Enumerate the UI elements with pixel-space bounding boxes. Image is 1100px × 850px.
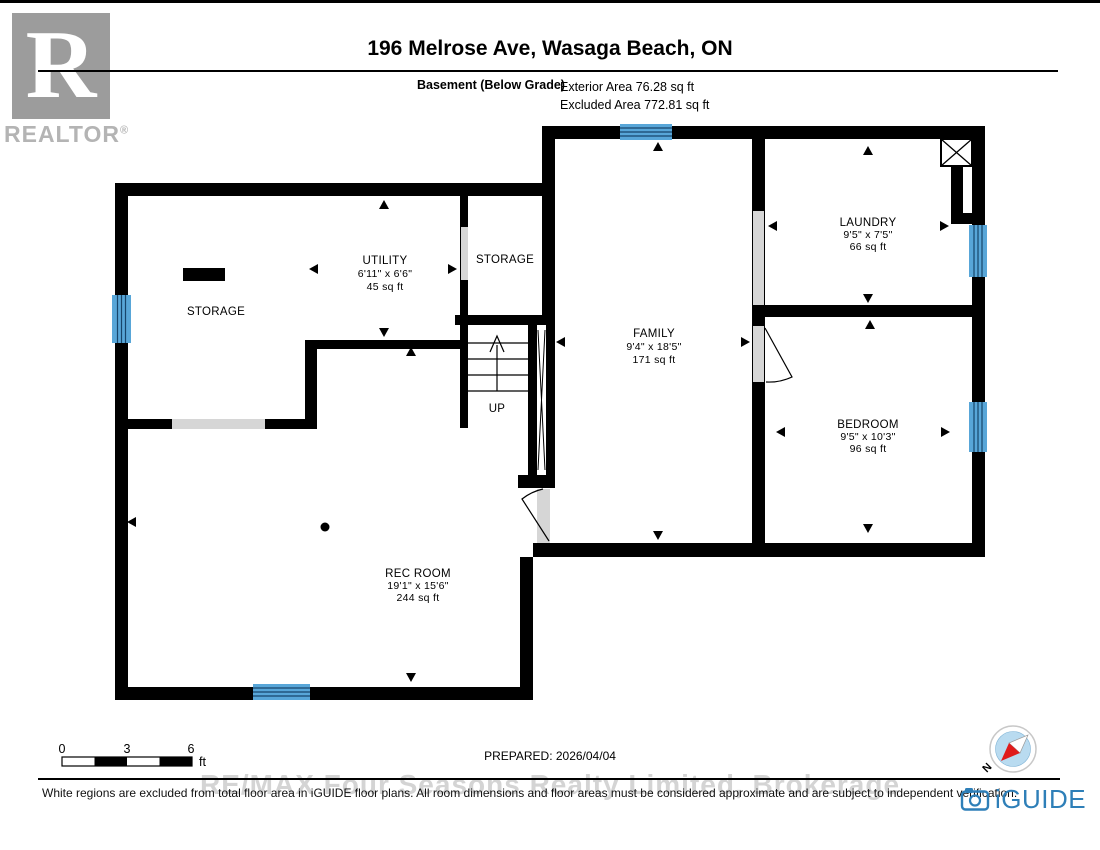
- registered-mark: ®: [120, 124, 129, 136]
- svg-text:45 sq ft: 45 sq ft: [367, 281, 404, 293]
- realtor-wordmark: REALTOR®: [4, 121, 129, 148]
- floor-plan-page: STORAGE UTILITY 6'11" x 6'6" 45 sq ft ST…: [0, 0, 1100, 850]
- stairs: [468, 330, 545, 470]
- compass-north-label: N: [980, 761, 994, 775]
- under-stair-x: [538, 330, 545, 470]
- doorway-bedroom: [753, 326, 764, 382]
- bedroom-door-swing: [765, 328, 792, 382]
- opening-storage-recroom: [172, 419, 265, 429]
- room-label-laundry: LAUNDRY 9'5" x 7'5" 66 sq ft: [840, 217, 897, 253]
- camera-icon: [960, 787, 990, 812]
- window-storage-left: [112, 295, 131, 343]
- realtor-logo: R: [12, 13, 110, 119]
- svg-text:171 sq ft: 171 sq ft: [633, 354, 676, 366]
- svg-text:66 sq ft: 66 sq ft: [850, 241, 887, 253]
- top-border: [0, 0, 1100, 3]
- svg-text:BEDROOM: BEDROOM: [837, 419, 899, 431]
- iguide-wordmark: iGUIDE: [995, 784, 1086, 815]
- svg-text:LAUNDRY: LAUNDRY: [840, 217, 897, 229]
- window-recroom-bottom: [253, 684, 310, 700]
- walls: [115, 126, 985, 700]
- windows: [112, 124, 987, 700]
- realtor-r-icon: R: [26, 19, 97, 112]
- page-title: 196 Melrose Ave, Wasaga Beach, ON: [0, 37, 1100, 61]
- door-swings: [522, 328, 792, 541]
- svg-text:UTILITY: UTILITY: [363, 255, 408, 267]
- disclaimer-text: White regions are excluded from total fl…: [42, 786, 1017, 800]
- svg-text:96 sq ft: 96 sq ft: [850, 443, 887, 455]
- svg-text:6'11" x 6'6": 6'11" x 6'6": [358, 268, 413, 280]
- iguide-logo: iGUIDE: [960, 784, 1086, 815]
- title-divider: [38, 70, 1058, 72]
- support-column: [321, 523, 330, 532]
- opening-utility-storage: [461, 227, 468, 280]
- doorway-recroom: [537, 489, 550, 543]
- window-laundry-right: [969, 225, 987, 277]
- storage-fixture: [183, 268, 225, 281]
- svg-text:19'1" x 15'6": 19'1" x 15'6": [387, 580, 449, 592]
- recroom-door-swing: [522, 489, 549, 541]
- room-label-bedroom: BEDROOM 9'5" x 10'3" 96 sq ft: [837, 419, 899, 455]
- svg-text:9'5" x 7'5": 9'5" x 7'5": [843, 229, 892, 241]
- room-label-utility: UTILITY 6'11" x 6'6" 45 sq ft: [358, 255, 413, 293]
- openings: [172, 211, 764, 543]
- floor-label: Basement (Below Grade): [417, 78, 565, 92]
- window-bedroom-right: [969, 402, 987, 452]
- svg-text:STORAGE: STORAGE: [476, 254, 534, 266]
- room-label-storage-mid: STORAGE: [476, 254, 534, 266]
- svg-text:REC ROOM: REC ROOM: [385, 568, 451, 580]
- svg-text:STORAGE: STORAGE: [187, 306, 245, 318]
- opening-family-laundry: [753, 211, 764, 305]
- chimney-x-marker: [941, 139, 972, 166]
- measure-arrows: [127, 142, 950, 682]
- excluded-area: Excluded Area 772.81 sq ft: [560, 96, 709, 114]
- area-summary: Exterior Area 76.28 sq ft Excluded Area …: [560, 78, 709, 114]
- svg-text:FAMILY: FAMILY: [633, 328, 675, 340]
- svg-text:9'5" x 10'3": 9'5" x 10'3": [840, 431, 895, 443]
- window-family-top: [620, 124, 672, 140]
- room-label-storage-west: STORAGE: [187, 306, 245, 318]
- stairs-up-label: UP: [489, 403, 506, 415]
- footer-divider: [38, 778, 1060, 780]
- floor-plan: STORAGE UTILITY 6'11" x 6'6" 45 sq ft ST…: [0, 0, 1100, 850]
- exterior-area: Exterior Area 76.28 sq ft: [560, 78, 709, 96]
- svg-text:244 sq ft: 244 sq ft: [397, 592, 440, 604]
- room-label-recroom: REC ROOM 19'1" x 15'6" 244 sq ft: [385, 568, 451, 604]
- room-label-family: FAMILY 9'4" x 18'5" 171 sq ft: [626, 328, 681, 366]
- prepared-date: PREPARED: 2026/04/04: [0, 749, 1100, 763]
- svg-text:9'4" x 18'5": 9'4" x 18'5": [626, 341, 681, 353]
